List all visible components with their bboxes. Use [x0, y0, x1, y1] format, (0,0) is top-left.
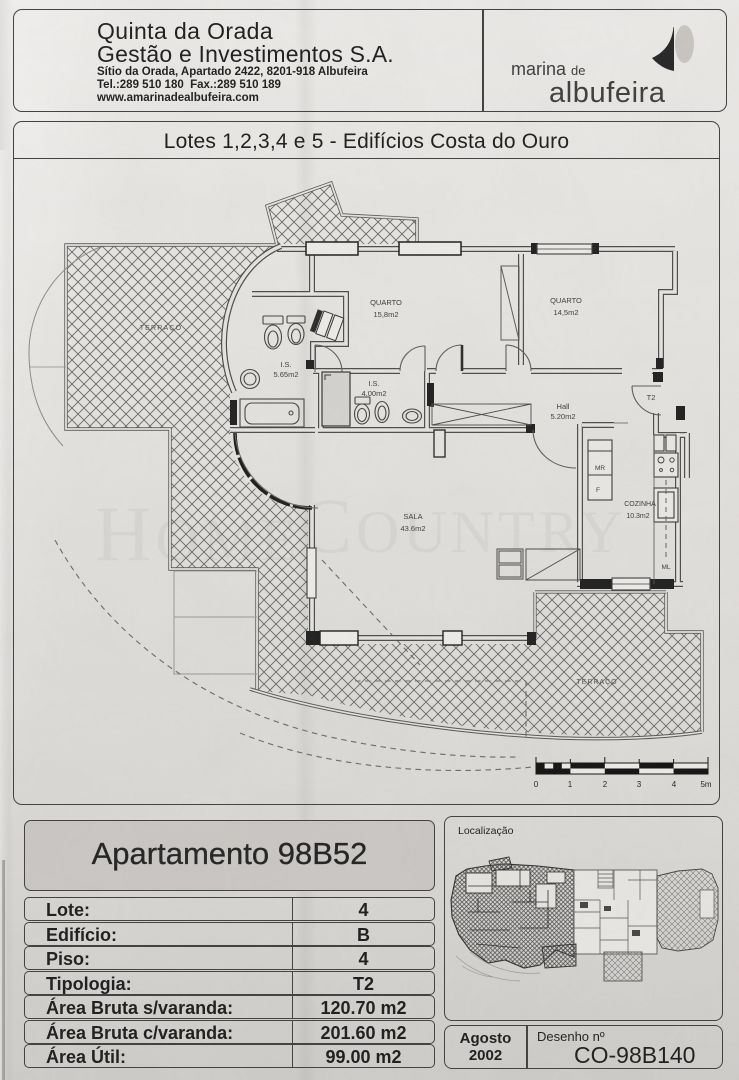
svg-text:Hall: Hall	[557, 402, 570, 411]
svg-text:5m: 5m	[700, 780, 711, 789]
svg-text:I.S.: I.S.	[280, 360, 291, 369]
svg-text:TERRAÇO: TERRAÇO	[576, 679, 617, 686]
svg-text:1: 1	[568, 780, 573, 789]
svg-text:ML: ML	[661, 564, 670, 571]
svg-text:5.65m2: 5.65m2	[273, 370, 298, 379]
svg-text:15,8m2: 15,8m2	[373, 310, 398, 319]
svg-text:T2: T2	[647, 393, 656, 402]
svg-text:TERRAÇO: TERRAÇO	[140, 325, 183, 332]
svg-text:2: 2	[603, 780, 608, 789]
svg-text:COZINHA: COZINHA	[624, 501, 656, 508]
svg-text:43.6m2: 43.6m2	[400, 524, 425, 533]
svg-text:14,5m2: 14,5m2	[553, 308, 578, 317]
svg-text:5.20m2: 5.20m2	[550, 412, 575, 421]
svg-text:3: 3	[637, 780, 642, 789]
svg-text:4.00m2: 4.00m2	[361, 389, 386, 398]
svg-text:I.S.: I.S.	[368, 379, 379, 388]
svg-text:QUARTO: QUARTO	[370, 298, 402, 307]
svg-text:SALA: SALA	[403, 512, 422, 521]
svg-text:MR: MR	[595, 465, 605, 472]
svg-text:QUARTO: QUARTO	[550, 296, 582, 305]
svg-text:0: 0	[534, 780, 539, 789]
svg-text:10.3m2: 10.3m2	[626, 513, 649, 520]
svg-text:F: F	[596, 487, 600, 494]
svg-text:4: 4	[672, 780, 677, 789]
